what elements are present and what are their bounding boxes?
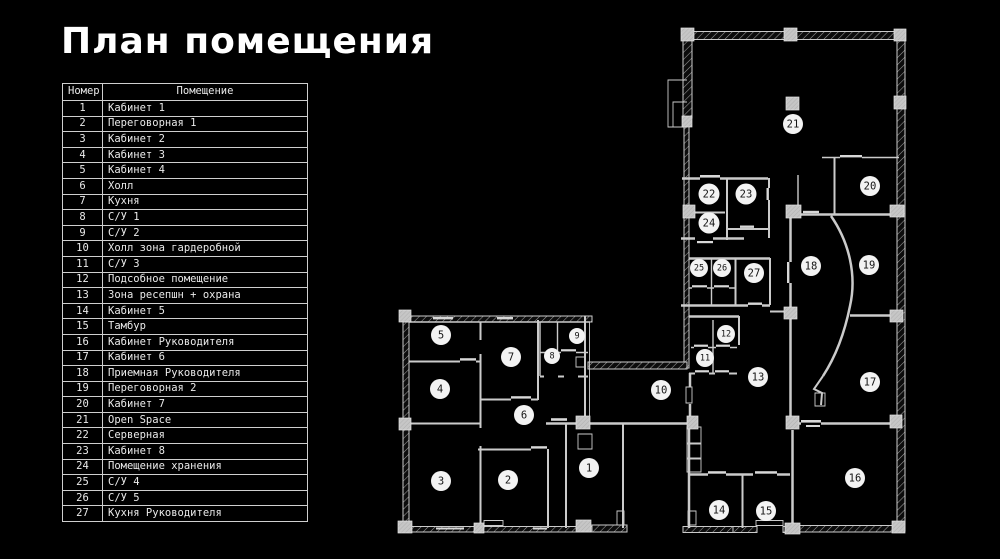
svg-text:23: 23: [740, 189, 753, 201]
svg-text:4: 4: [437, 384, 443, 396]
room-label: 11: [696, 349, 714, 367]
room-label: 20: [860, 176, 880, 196]
room-label: 1: [579, 458, 599, 478]
room-label: 22: [699, 184, 720, 205]
room-label: 12: [717, 325, 735, 343]
svg-text:1: 1: [586, 463, 592, 475]
room-label: 21: [783, 114, 803, 134]
room-label: 24: [699, 213, 720, 234]
svg-text:2: 2: [505, 475, 511, 487]
svg-text:3: 3: [438, 476, 444, 488]
room-label: 3: [431, 471, 451, 491]
room-label: 10: [651, 380, 671, 400]
svg-text:8: 8: [549, 352, 554, 362]
svg-text:18: 18: [805, 261, 818, 273]
room-label: 18: [801, 256, 821, 276]
room-label: 9: [569, 328, 585, 344]
svg-text:21: 21: [787, 119, 800, 131]
room-label: 14: [709, 500, 729, 520]
svg-text:19: 19: [863, 260, 876, 272]
svg-text:14: 14: [713, 505, 726, 517]
svg-text:9: 9: [574, 332, 579, 342]
columns: [398, 28, 906, 534]
screen: План помещения Номер Помещение 1Кабинет …: [0, 0, 1000, 559]
room-label: 19: [859, 255, 879, 275]
svg-text:24: 24: [703, 218, 716, 230]
svg-text:15: 15: [760, 506, 773, 518]
interior-walls: [409, 80, 899, 528]
svg-text:27: 27: [748, 268, 761, 280]
room-label: 13: [748, 367, 768, 387]
svg-text:16: 16: [849, 473, 862, 485]
svg-text:25: 25: [694, 264, 704, 274]
svg-text:7: 7: [508, 352, 514, 364]
svg-text:11: 11: [700, 354, 710, 364]
room-label: 7: [501, 347, 521, 367]
svg-text:22: 22: [703, 189, 716, 201]
room-label: 27: [744, 263, 764, 283]
svg-text:5: 5: [438, 330, 444, 342]
room-label: 15: [756, 501, 776, 521]
room-label: 26: [713, 259, 731, 277]
room-label: 6: [514, 405, 534, 425]
svg-text:6: 6: [521, 410, 527, 422]
room-label: 8: [544, 348, 560, 364]
room-label: 4: [430, 379, 450, 399]
room-label: 2: [498, 470, 518, 490]
room-label: 16: [845, 468, 865, 488]
room-label: 5: [431, 325, 451, 345]
floor-plan: 1234567891011121314151617181920212223242…: [0, 0, 1000, 559]
svg-text:26: 26: [717, 264, 727, 274]
room-label: 17: [860, 372, 880, 392]
room-label: 23: [736, 184, 757, 205]
room-label: 25: [690, 259, 708, 277]
svg-text:13: 13: [752, 372, 765, 384]
exterior-walls: [403, 30, 905, 533]
svg-text:10: 10: [655, 385, 668, 397]
svg-text:12: 12: [721, 330, 731, 340]
svg-text:17: 17: [864, 377, 877, 389]
svg-text:20: 20: [864, 181, 877, 193]
